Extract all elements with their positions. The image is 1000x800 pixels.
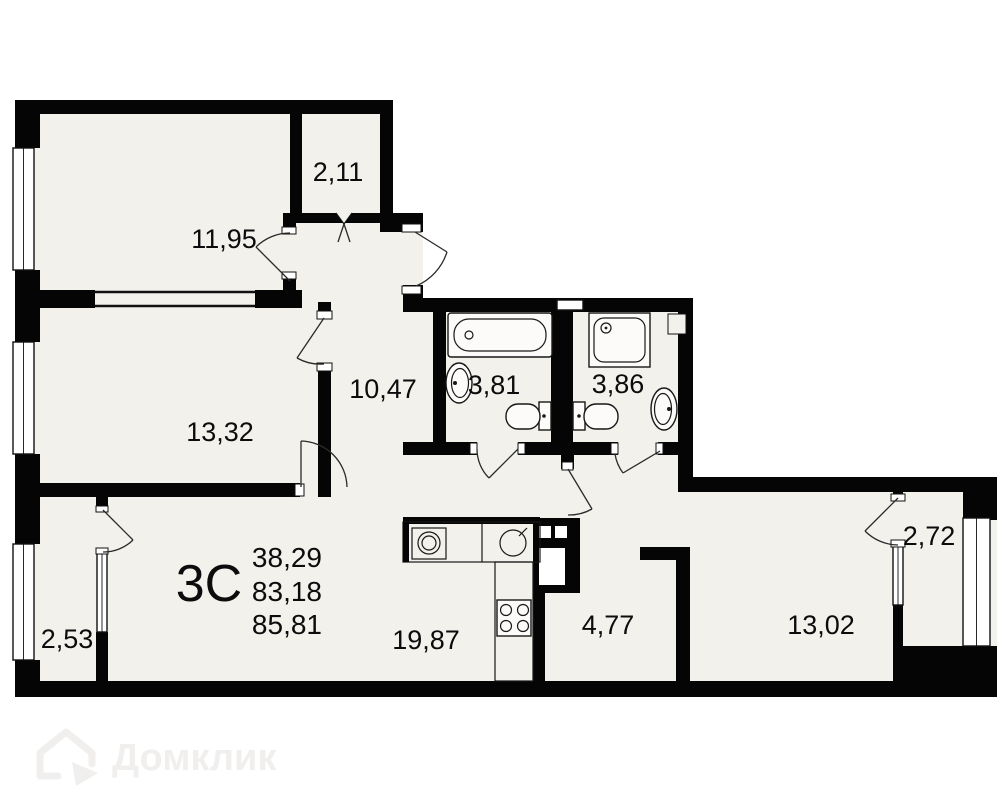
wall-segment — [551, 312, 573, 443]
floor-plan: 2,11 11,95 13,32 10,47 3,81 3,86 2,53 19… — [0, 0, 1000, 800]
wall-segment — [683, 477, 997, 492]
wall-segment — [533, 590, 545, 683]
room-area-label: 2,53 — [41, 624, 94, 654]
door-jamb — [402, 224, 421, 232]
wall-segment — [15, 290, 95, 308]
room-area-label: 2,11 — [313, 157, 364, 187]
wall-segment — [963, 490, 997, 520]
wall-segment — [640, 547, 690, 560]
door-jamb — [470, 443, 477, 454]
wall-segment — [15, 681, 895, 697]
wall-segment — [290, 100, 302, 213]
door-jamb — [562, 462, 573, 470]
wall-segment — [893, 605, 903, 650]
floor-plan-page: 2,11 11,95 13,32 10,47 3,81 3,86 2,53 19… — [0, 0, 1000, 800]
wall-segment — [318, 365, 331, 497]
wall-segment — [15, 483, 300, 497]
wall-segment — [15, 100, 393, 114]
wall-segment — [403, 298, 693, 312]
room-area-label: 13,02 — [787, 610, 855, 640]
wall-segment — [433, 312, 446, 443]
toilet-bathroom-2 — [573, 402, 618, 430]
vent-notch — [668, 314, 686, 334]
shaft-cutout — [539, 548, 565, 585]
door-jamb — [402, 286, 421, 294]
wall-segment — [380, 100, 393, 223]
bathtub — [448, 313, 552, 357]
sink-bathroom-2 — [651, 388, 677, 430]
window-balcony-right-partition — [893, 545, 903, 605]
domclick-watermark: Домклик — [40, 732, 277, 786]
area-summary-value: 85,81 — [252, 609, 322, 640]
domclick-logo-icon — [40, 732, 98, 786]
shaft-cutout — [539, 526, 551, 538]
door-jamb — [96, 548, 108, 554]
door-jamb — [317, 311, 332, 319]
domclick-watermark-text: Домклик — [112, 737, 277, 779]
toilet-bathroom-1 — [506, 402, 551, 430]
apartment-type-label: 3С — [176, 555, 242, 613]
door-jamb — [891, 494, 905, 501]
room-area-label: 19,87 — [392, 625, 460, 655]
room-area-label: 11,95 — [191, 224, 257, 254]
vent-window-bathroom-wall — [557, 300, 583, 310]
wall-segment — [96, 632, 108, 683]
room-area-label: 10,47 — [349, 374, 417, 404]
room-area-label: 3,86 — [592, 369, 645, 399]
window-balcony-left-partition — [97, 552, 107, 632]
wall-segment — [403, 442, 477, 455]
area-summary-value: 38,29 — [252, 542, 322, 573]
area-summary-value: 83,18 — [252, 576, 322, 607]
window-balcony-right — [963, 518, 990, 646]
room-area-label: 3,81 — [468, 370, 521, 400]
window-balcony-left — [13, 544, 34, 660]
shaft-cutout — [555, 526, 567, 538]
wall-segment — [255, 290, 302, 308]
wall-segment — [893, 646, 997, 697]
wall-segment — [15, 454, 40, 544]
wall-segment — [15, 100, 40, 148]
shower-tray — [589, 313, 650, 367]
window-bedroom-2 — [13, 342, 34, 454]
room-area-label: 13,32 — [186, 417, 254, 447]
stove — [497, 600, 531, 636]
wall-segment — [676, 547, 690, 683]
wall-segment — [518, 442, 618, 455]
room-area-label: 4,77 — [582, 610, 635, 640]
wall-segment — [290, 213, 380, 223]
window-bedroom-1 — [13, 148, 34, 270]
door-jamb — [518, 443, 525, 454]
door-jamb — [295, 484, 304, 496]
room-area-label: 2,72 — [903, 521, 956, 551]
door-jamb — [611, 443, 618, 454]
door-jamb — [96, 506, 108, 512]
